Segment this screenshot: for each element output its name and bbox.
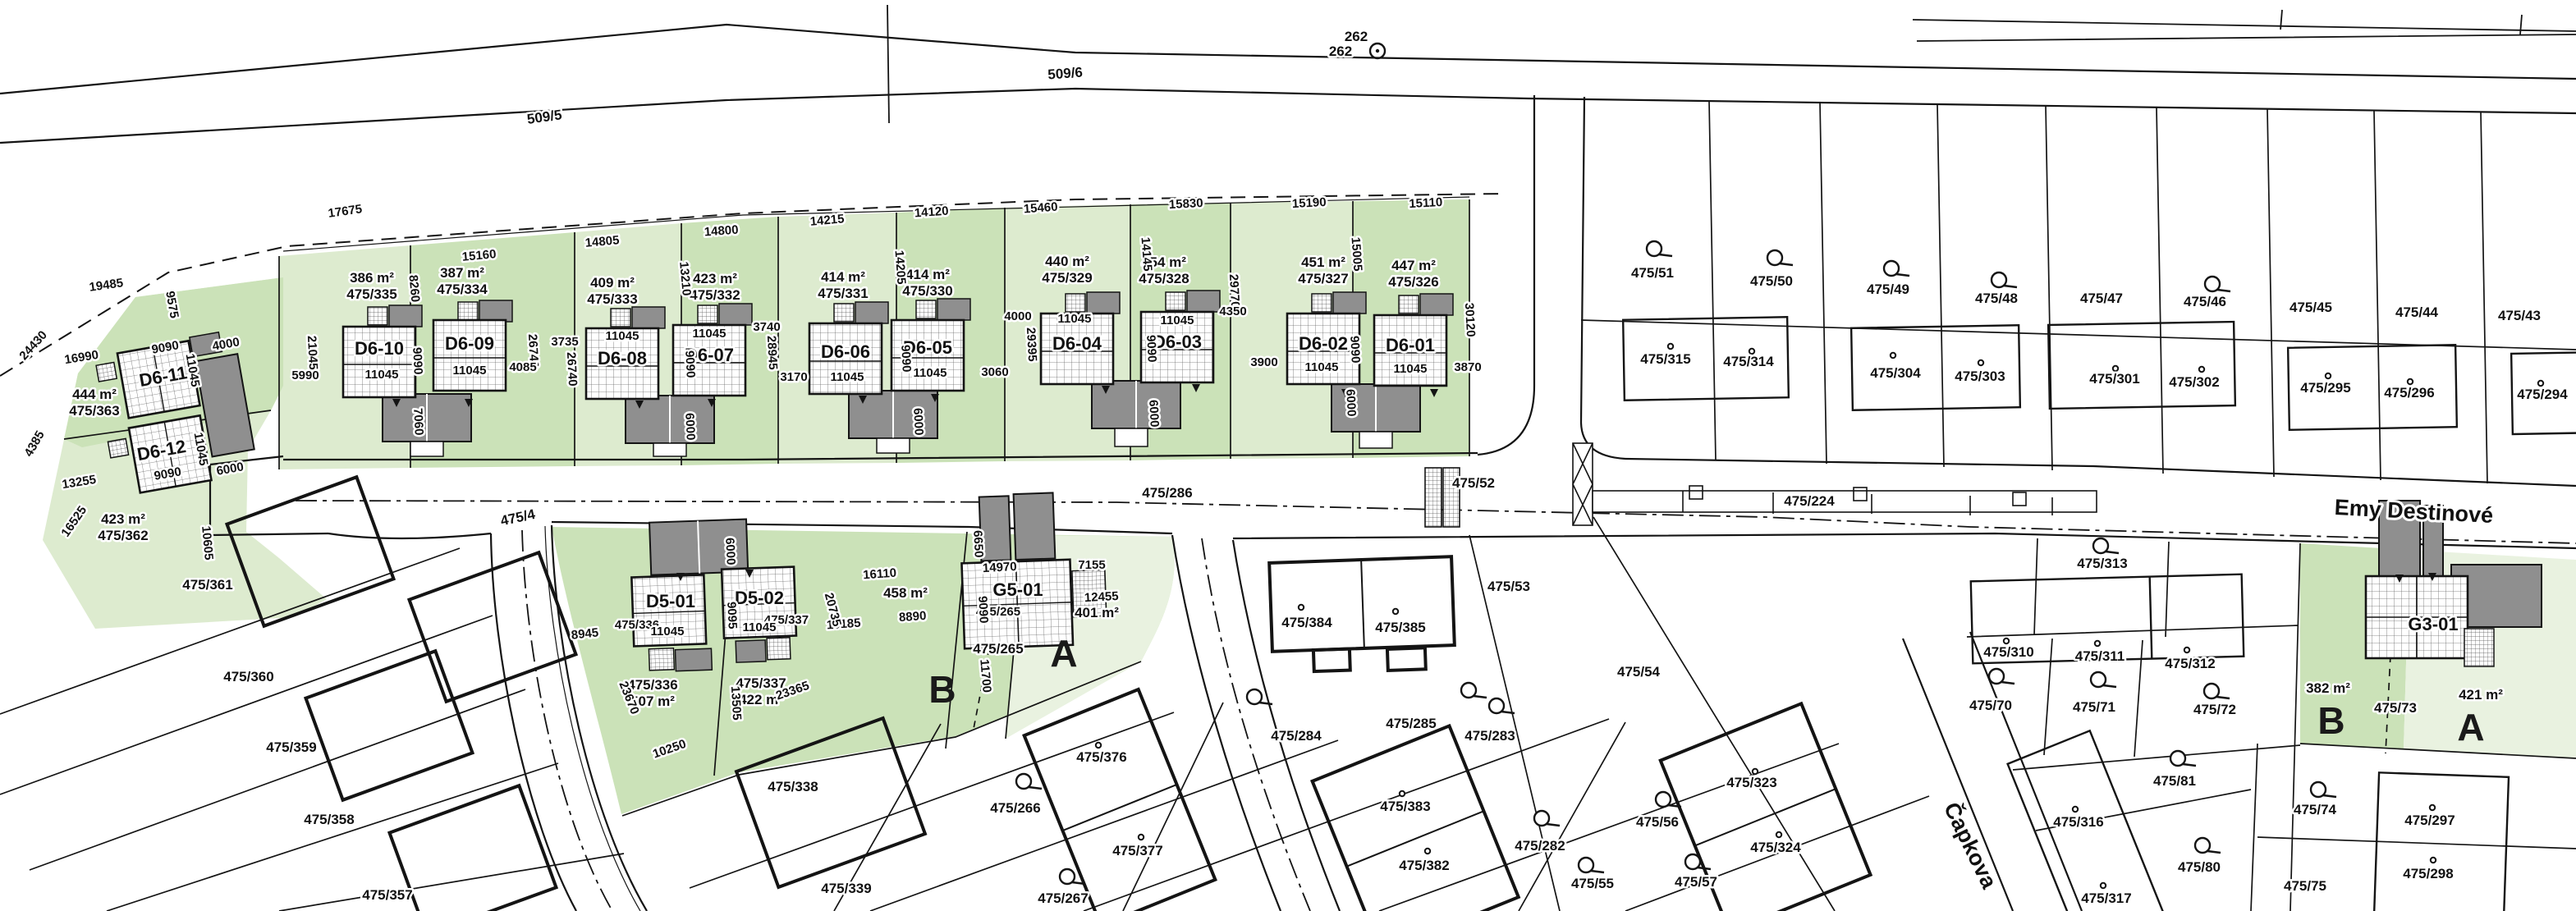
parcel-label: 475/327 [1298, 271, 1348, 286]
road-475-224: 475/224 [1784, 493, 1835, 509]
point-262-a: 262 [1345, 29, 1368, 44]
house-label: G5-01 [992, 579, 1043, 600]
dim-label: 10605 [199, 525, 216, 561]
parcel-label: 475/312 [2165, 656, 2215, 671]
parcel-label: 475/282 [1515, 838, 1565, 854]
dim-label: 8890 [898, 609, 926, 625]
dim-label: 11045 [651, 625, 685, 639]
dim-label: 9095 [724, 602, 740, 629]
survey-mark-icon [1647, 241, 1672, 256]
house-label: D6-01 [1386, 335, 1435, 355]
parcel-label: 475/46 [2184, 294, 2226, 309]
dim-label: 15830 [1168, 196, 1203, 212]
parcel-label: 475/311 [2075, 648, 2125, 664]
dim-label: 15190 [1291, 195, 1327, 211]
parcel-label: 475/333 [587, 291, 637, 307]
dim-label: 11045 [365, 368, 399, 382]
house-label: D5-01 [646, 591, 695, 611]
dim-label: 11045 [743, 620, 777, 634]
dim-label: 6000 [1146, 400, 1162, 428]
parcel-label: 475/317 [2081, 890, 2131, 906]
survey-mark-icon [2205, 277, 2230, 291]
building-point-icon [2430, 805, 2435, 810]
parcel-label: 475/296 [2384, 385, 2434, 401]
area-label: 386 m² [350, 270, 394, 286]
parcel-label: 475/55 [1571, 876, 1614, 891]
building-point-icon [1668, 344, 1673, 349]
parcel-label: 475/294 [2517, 387, 2568, 402]
parcel-label: 475/385 [1375, 620, 1425, 635]
dim-label: 13210 [676, 261, 694, 296]
survey-mark-icon [1989, 669, 2015, 684]
house-label: D5-02 [735, 588, 784, 608]
building-point-icon [1096, 743, 1101, 748]
dim-label: 5990 [291, 369, 319, 382]
building-point-icon [1425, 849, 1430, 854]
area-label: 451 m² [1301, 254, 1345, 270]
parcel-label: 475/323 [1726, 775, 1776, 790]
dim-label: 11045 [693, 327, 727, 341]
survey-mark-icon [1579, 858, 1604, 872]
parcel-label: 475/314 [1723, 354, 1774, 369]
dim-label: 11045 [831, 370, 864, 384]
house-label: D6-06 [821, 341, 870, 362]
dim-label: 7155 [1078, 558, 1105, 572]
dim-label: 14215 [809, 212, 845, 229]
area-label: 401 m² [1075, 605, 1119, 620]
area-label: 414 m² [821, 269, 865, 285]
plot-letter-b: B [928, 668, 956, 711]
survey-mark-icon [2093, 538, 2119, 553]
dim-label: 11045 [914, 366, 947, 380]
dim-label: 9090 [975, 596, 991, 624]
survey-mark-icon [1884, 261, 1909, 276]
building-point-icon [2326, 373, 2331, 378]
dim-label: 11045 [1161, 314, 1194, 327]
dim-label: 11045 [606, 329, 639, 343]
parcel-label: 475/382 [1399, 858, 1449, 873]
dim-label: 14800 [704, 223, 739, 240]
dim-label: 24430 [16, 328, 50, 363]
parcel-label: 475/330 [902, 283, 952, 299]
dim-label: 26740 [564, 351, 580, 387]
dim-label: 15110 [1409, 195, 1443, 211]
parcel-label: 475/267 [1038, 890, 1088, 906]
parcel-label: 475/295 [2300, 380, 2350, 396]
dim-label: 6000 [682, 413, 698, 441]
parcel-label: 475/43 [2498, 308, 2541, 323]
survey-mark-icon [1685, 854, 1711, 869]
parcel-label: 475/52 [1452, 475, 1495, 491]
house-label: G3-01 [2408, 614, 2458, 634]
area-label: 382 m² [2306, 680, 2350, 696]
building-point-icon [2073, 807, 2078, 812]
dim-label: 14970 [982, 560, 1017, 575]
parcel-label: 475/304 [1870, 365, 1921, 381]
parcel-label: 475/285 [1386, 716, 1436, 731]
house-label: D6-04 [1052, 333, 1102, 354]
survey-mark-icon [2170, 751, 2196, 766]
area-label: 447 m² [1391, 258, 1436, 273]
parcel-label: 475/336 [627, 677, 677, 693]
parcel-label: 475/266 [990, 800, 1040, 816]
road-475-286: 475/286 [1142, 485, 1192, 501]
dim-label: 19485 [89, 276, 125, 295]
parcel-label: 475/361 [182, 577, 232, 593]
dim-label: 3735 [551, 335, 578, 349]
parcel-label: 475/75 [2284, 878, 2326, 894]
dim-label: 16110 [863, 566, 897, 583]
parcel-label: 475/71 [2073, 699, 2115, 715]
parcel-label: 475/53 [1487, 579, 1530, 594]
building-point-icon [1978, 360, 1983, 365]
dim-label: 4350 [1219, 304, 1246, 318]
parcel-label: 475/56 [1636, 814, 1679, 830]
dim-label: 9090 [898, 345, 914, 373]
building-point-icon [2199, 367, 2204, 372]
parcel-label: 475/335 [346, 286, 396, 302]
parcel-label: 475/362 [98, 528, 148, 543]
area-label: 444 m² [72, 387, 117, 402]
point-262-b: 262 [1329, 43, 1352, 59]
building-point-icon [2101, 883, 2106, 888]
dim-label: 8945 [571, 625, 599, 642]
parcel-label: 475/329 [1042, 270, 1092, 286]
dim-label: 7060 [410, 408, 426, 436]
parcel-label: 475/302 [2169, 374, 2219, 390]
dim-label: 14805 [584, 233, 620, 250]
dim-label: 29770 [1226, 273, 1242, 309]
parcel-label: 475/72 [2193, 702, 2236, 717]
parcel-label: 475/49 [1867, 282, 1909, 297]
survey-mark-icon [1767, 250, 1793, 265]
dim-label: 14120 [914, 204, 949, 221]
dim-label: 15460 [1023, 200, 1058, 217]
dim-label: 6000 [722, 538, 738, 565]
dim-label: 4000 [1004, 309, 1031, 323]
building-point-icon [2004, 639, 2009, 643]
parcel-label: 475/328 [1139, 271, 1189, 286]
dim-label: 21045 [305, 335, 320, 370]
building-point-icon [1776, 832, 1781, 837]
building-point-icon [1753, 769, 1758, 774]
dim-label: 6000 [910, 408, 926, 436]
dim-label: 11045 [1305, 360, 1339, 374]
survey-mark-icon [2091, 672, 2116, 687]
dim-label: 11045 [1394, 362, 1428, 376]
parcel-label: 475/45 [2290, 300, 2332, 315]
road-509-5: 509/5 [526, 107, 563, 127]
parcel-label: 475/358 [304, 812, 354, 827]
building-point-icon [1139, 835, 1144, 840]
parcel-label: 475/301 [2089, 371, 2139, 387]
dim-label: 28945 [764, 335, 780, 370]
building-point-icon [1891, 353, 1895, 358]
parcel-label: 475/326 [1388, 274, 1438, 290]
survey-mark-icon [1992, 272, 2017, 287]
area-label: 421 m² [2459, 687, 2503, 703]
dim-label: 4385 [21, 428, 47, 459]
parcel-label: 475/54 [1617, 664, 1661, 680]
dim-label: 14205 [892, 249, 909, 285]
parcel-label: 475/376 [1076, 749, 1126, 765]
parcel-label: 475/310 [1983, 644, 2033, 660]
building-point-icon [2095, 641, 2100, 646]
area-label: 440 m² [1045, 254, 1089, 269]
area-label: 414 m² [905, 267, 950, 282]
site-plan-map: 509/5509/6262262475/286475/4475/224475/5… [0, 0, 2576, 911]
parcel-label: 475/47 [2080, 291, 2123, 306]
building-point-icon [2431, 858, 2436, 863]
dim-label: 11045 [453, 364, 487, 378]
plan-drawing: 509/5509/6262262475/286475/4475/224475/5… [0, 0, 2576, 911]
dim-label: 3870 [1454, 360, 1481, 374]
area-label: 423 m² [693, 271, 737, 286]
parcel-label: 475/383 [1380, 799, 1430, 814]
dim-label: 15005 [1349, 236, 1365, 272]
parcel-label: 475/313 [2077, 556, 2127, 571]
parcel-label: 475/73 [2374, 700, 2417, 716]
dim-label: 30120 [1462, 302, 1478, 337]
building-point-icon [2184, 648, 2189, 652]
parcel-label: 475/57 [1675, 874, 1717, 890]
dim-label: 11045 [1058, 312, 1092, 326]
parcel-label: 475/331 [818, 286, 868, 301]
survey-mark-icon [1534, 811, 1560, 826]
survey-mark-icon [1016, 774, 1042, 789]
parcel-label: 475/303 [1955, 369, 2005, 384]
building-point-icon [2538, 381, 2543, 386]
parcel-label: 475/357 [362, 887, 412, 903]
house-label: D6-08 [598, 348, 647, 369]
dim-label: 3170 [780, 370, 807, 384]
survey-mark-icon [2311, 782, 2336, 797]
street-capkova: Čapkova [1939, 798, 2003, 893]
survey-mark-icon [2204, 684, 2230, 698]
plot-letter-b2: B [2317, 699, 2345, 742]
dim-label: 6650 [970, 530, 986, 558]
survey-mark-icon [1461, 683, 1487, 698]
dim-label: 13505 [728, 685, 744, 721]
parcel-label: 475/284 [1271, 728, 1322, 744]
parcel-label: 475/298 [2403, 866, 2453, 881]
dim-label: 6000 [1343, 389, 1359, 417]
parcel-label: 475/360 [223, 669, 273, 684]
parcel-label: 475/283 [1464, 728, 1515, 744]
parcel-label: 475/384 [1281, 615, 1332, 630]
parcel-label: 475/338 [768, 779, 818, 794]
street-emy-destinove: Emy Destinové [2334, 495, 2494, 528]
parcel-label: 475/48 [1975, 291, 2018, 306]
house-label: D6-02 [1299, 333, 1348, 354]
parcel-label: 475/51 [1631, 265, 1674, 281]
parcel-label: 475/324 [1750, 840, 1801, 855]
dim-label: 15160 [461, 247, 497, 264]
parcel-label: 475/363 [69, 403, 119, 419]
dim-label: 8260 [406, 274, 423, 303]
area-label: 387 m² [440, 265, 484, 281]
parcel-label: 475/359 [266, 739, 316, 755]
area-label: 423 m² [101, 511, 145, 527]
house-label: D6-10 [355, 338, 404, 359]
dim-label: 3060 [981, 365, 1008, 379]
survey-point-262-icon [1370, 43, 1385, 58]
dim-label: 29395 [1024, 327, 1039, 362]
building-point-icon [1393, 609, 1398, 614]
dim-label: 11700 [977, 658, 993, 693]
survey-symbols [1016, 43, 2543, 888]
building-point-icon [1400, 791, 1405, 796]
parcel-label: 475/377 [1112, 843, 1162, 858]
parcel-label: 475/70 [1969, 698, 2012, 713]
parcel-label: 475/74 [2294, 802, 2337, 817]
parcel-label: 475/316 [2053, 814, 2103, 830]
dim-label: 12455 [1084, 589, 1119, 605]
utility-strip [1425, 443, 2097, 527]
road-475-4: 475/4 [499, 506, 537, 529]
house-label: D6-03 [1153, 332, 1202, 352]
building-point-icon [2408, 379, 2413, 384]
building-point-icon [1299, 605, 1304, 610]
parcel-label: 475/332 [690, 287, 740, 303]
dim-label: 9090 [410, 347, 425, 375]
dim-label: 9090 [1347, 336, 1363, 364]
plot-letter-a2: A [2457, 706, 2484, 748]
dim-label: 9090 [682, 350, 698, 378]
dim-label: 14145 [1139, 236, 1155, 272]
parcel-label: 475/80 [2178, 859, 2221, 875]
plot-letter-a: A [1050, 632, 1077, 675]
parcel-label: 475/334 [437, 282, 488, 297]
road-509-6: 509/6 [1047, 65, 1084, 83]
parcel-label: 475/44 [2395, 304, 2439, 320]
dim-label: 3900 [1250, 355, 1277, 369]
area-label: 458 m² [883, 585, 928, 601]
parcel-label: 475/265 [973, 641, 1023, 657]
dim-label: 9090 [1144, 335, 1159, 363]
parcel-label: 475/315 [1640, 351, 1690, 367]
parcel-label: 475/339 [821, 881, 871, 896]
survey-mark-icon [2195, 838, 2221, 853]
dim-label: 17675 [328, 202, 364, 221]
dim-label: 4085 [509, 360, 536, 374]
dim-label: 3740 [753, 320, 780, 334]
parcel-label: 475/297 [2404, 813, 2455, 828]
area-label: 409 m² [590, 275, 635, 291]
house-label: D6-09 [445, 333, 494, 354]
parcel-label: 475/81 [2153, 773, 2196, 789]
parcel-label: 475/50 [1750, 273, 1793, 289]
